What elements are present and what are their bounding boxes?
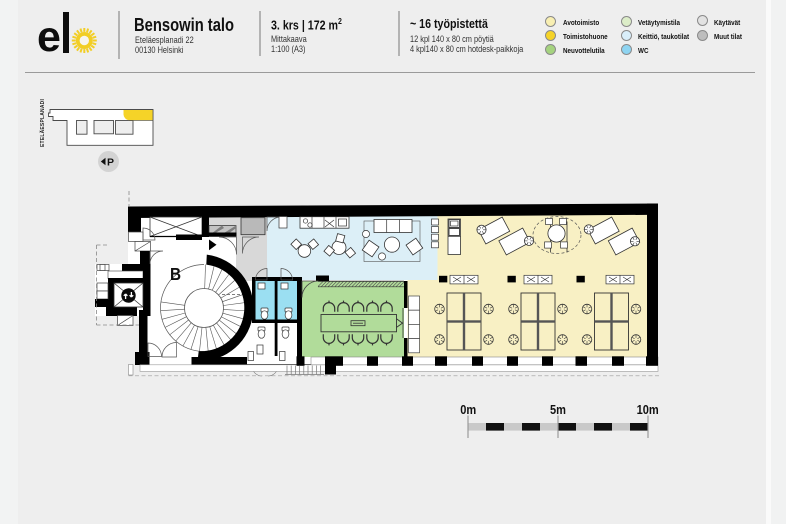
svg-text:B: B <box>170 264 181 284</box>
svg-text:5m: 5m <box>550 402 566 417</box>
svg-text:ETELÄESPLANADI: ETELÄESPLANADI <box>39 99 46 147</box>
svg-text:10m: 10m <box>637 402 659 417</box>
svg-text:P: P <box>107 156 114 168</box>
svg-text:0m: 0m <box>460 402 476 417</box>
